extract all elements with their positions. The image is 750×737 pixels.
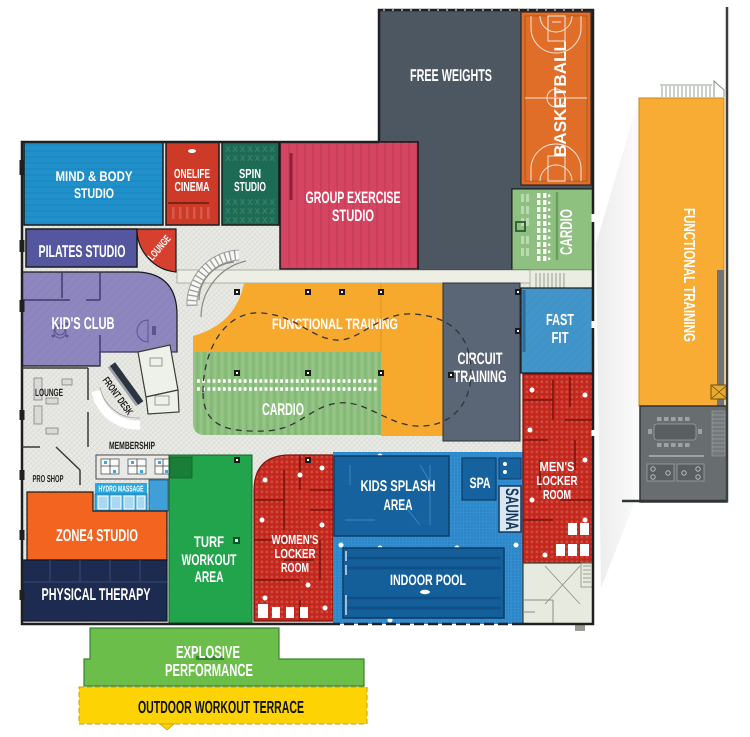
svg-text:TURF: TURF <box>194 534 224 551</box>
svg-text:BASKETBALL: BASKETBALL <box>551 41 570 157</box>
svg-text:PRO SHOP: PRO SHOP <box>33 474 64 485</box>
svg-text:AREA: AREA <box>195 569 224 586</box>
svg-text:AREA: AREA <box>384 497 413 514</box>
svg-text:PILATES STUDIO: PILATES STUDIO <box>39 242 126 261</box>
svg-text:CARDIO: CARDIO <box>262 400 304 419</box>
svg-text:CARDIO: CARDIO <box>557 209 576 255</box>
svg-text:ZONE4 STUDIO: ZONE4 STUDIO <box>56 526 138 545</box>
svg-text:OUTDOOR WORKOUT TERRACE: OUTDOOR WORKOUT TERRACE <box>138 697 304 717</box>
svg-text:STUDIO: STUDIO <box>332 207 374 225</box>
svg-text:MEN'S: MEN'S <box>540 459 575 474</box>
svg-text:PHYSICAL THERAPY: PHYSICAL THERAPY <box>42 585 151 604</box>
svg-text:ROOM: ROOM <box>281 560 309 575</box>
svg-text:FAST: FAST <box>546 312 574 329</box>
svg-text:TRAINING: TRAINING <box>454 368 507 386</box>
svg-text:FUNCTIONAL TRAINING: FUNCTIONAL TRAINING <box>272 316 398 333</box>
svg-text:LOCKER: LOCKER <box>537 473 578 488</box>
svg-text:WOMEN'S: WOMEN'S <box>272 532 319 547</box>
svg-text:WORKOUT: WORKOUT <box>182 552 237 569</box>
svg-text:KID'S CLUB: KID'S CLUB <box>52 314 115 333</box>
svg-text:CIRCUIT: CIRCUIT <box>458 350 503 368</box>
svg-text:KIDS SPLASH: KIDS SPLASH <box>361 478 436 495</box>
svg-text:PERFORMANCE: PERFORMANCE <box>165 660 253 680</box>
svg-text:STUDIO: STUDIO <box>234 179 266 194</box>
svg-text:GROUP EXERCISE: GROUP EXERCISE <box>306 189 401 207</box>
svg-text:MEMBERSHIP: MEMBERSHIP <box>109 440 155 452</box>
svg-text:LOCKER: LOCKER <box>275 546 316 561</box>
svg-text:FIT: FIT <box>552 330 569 347</box>
svg-text:FREE WEIGHTS: FREE WEIGHTS <box>410 66 492 85</box>
svg-text:ROOM: ROOM <box>543 487 571 502</box>
svg-text:CINEMA: CINEMA <box>175 179 210 194</box>
svg-text:STUDIO: STUDIO <box>74 185 114 201</box>
svg-text:EXPLOSIVE: EXPLOSIVE <box>176 642 240 662</box>
svg-text:FUNCTIONAL TRAINING: FUNCTIONAL TRAINING <box>680 208 697 342</box>
svg-text:LOUNGE: LOUNGE <box>35 387 63 399</box>
svg-text:SPA: SPA <box>470 475 491 492</box>
svg-text:MIND & BODY: MIND & BODY <box>56 168 134 184</box>
svg-text:SAUNA: SAUNA <box>502 488 522 530</box>
svg-text:INDOOR POOL: INDOOR POOL <box>390 572 466 589</box>
svg-text:HYDRO MASSAGE: HYDRO MASSAGE <box>99 484 144 494</box>
